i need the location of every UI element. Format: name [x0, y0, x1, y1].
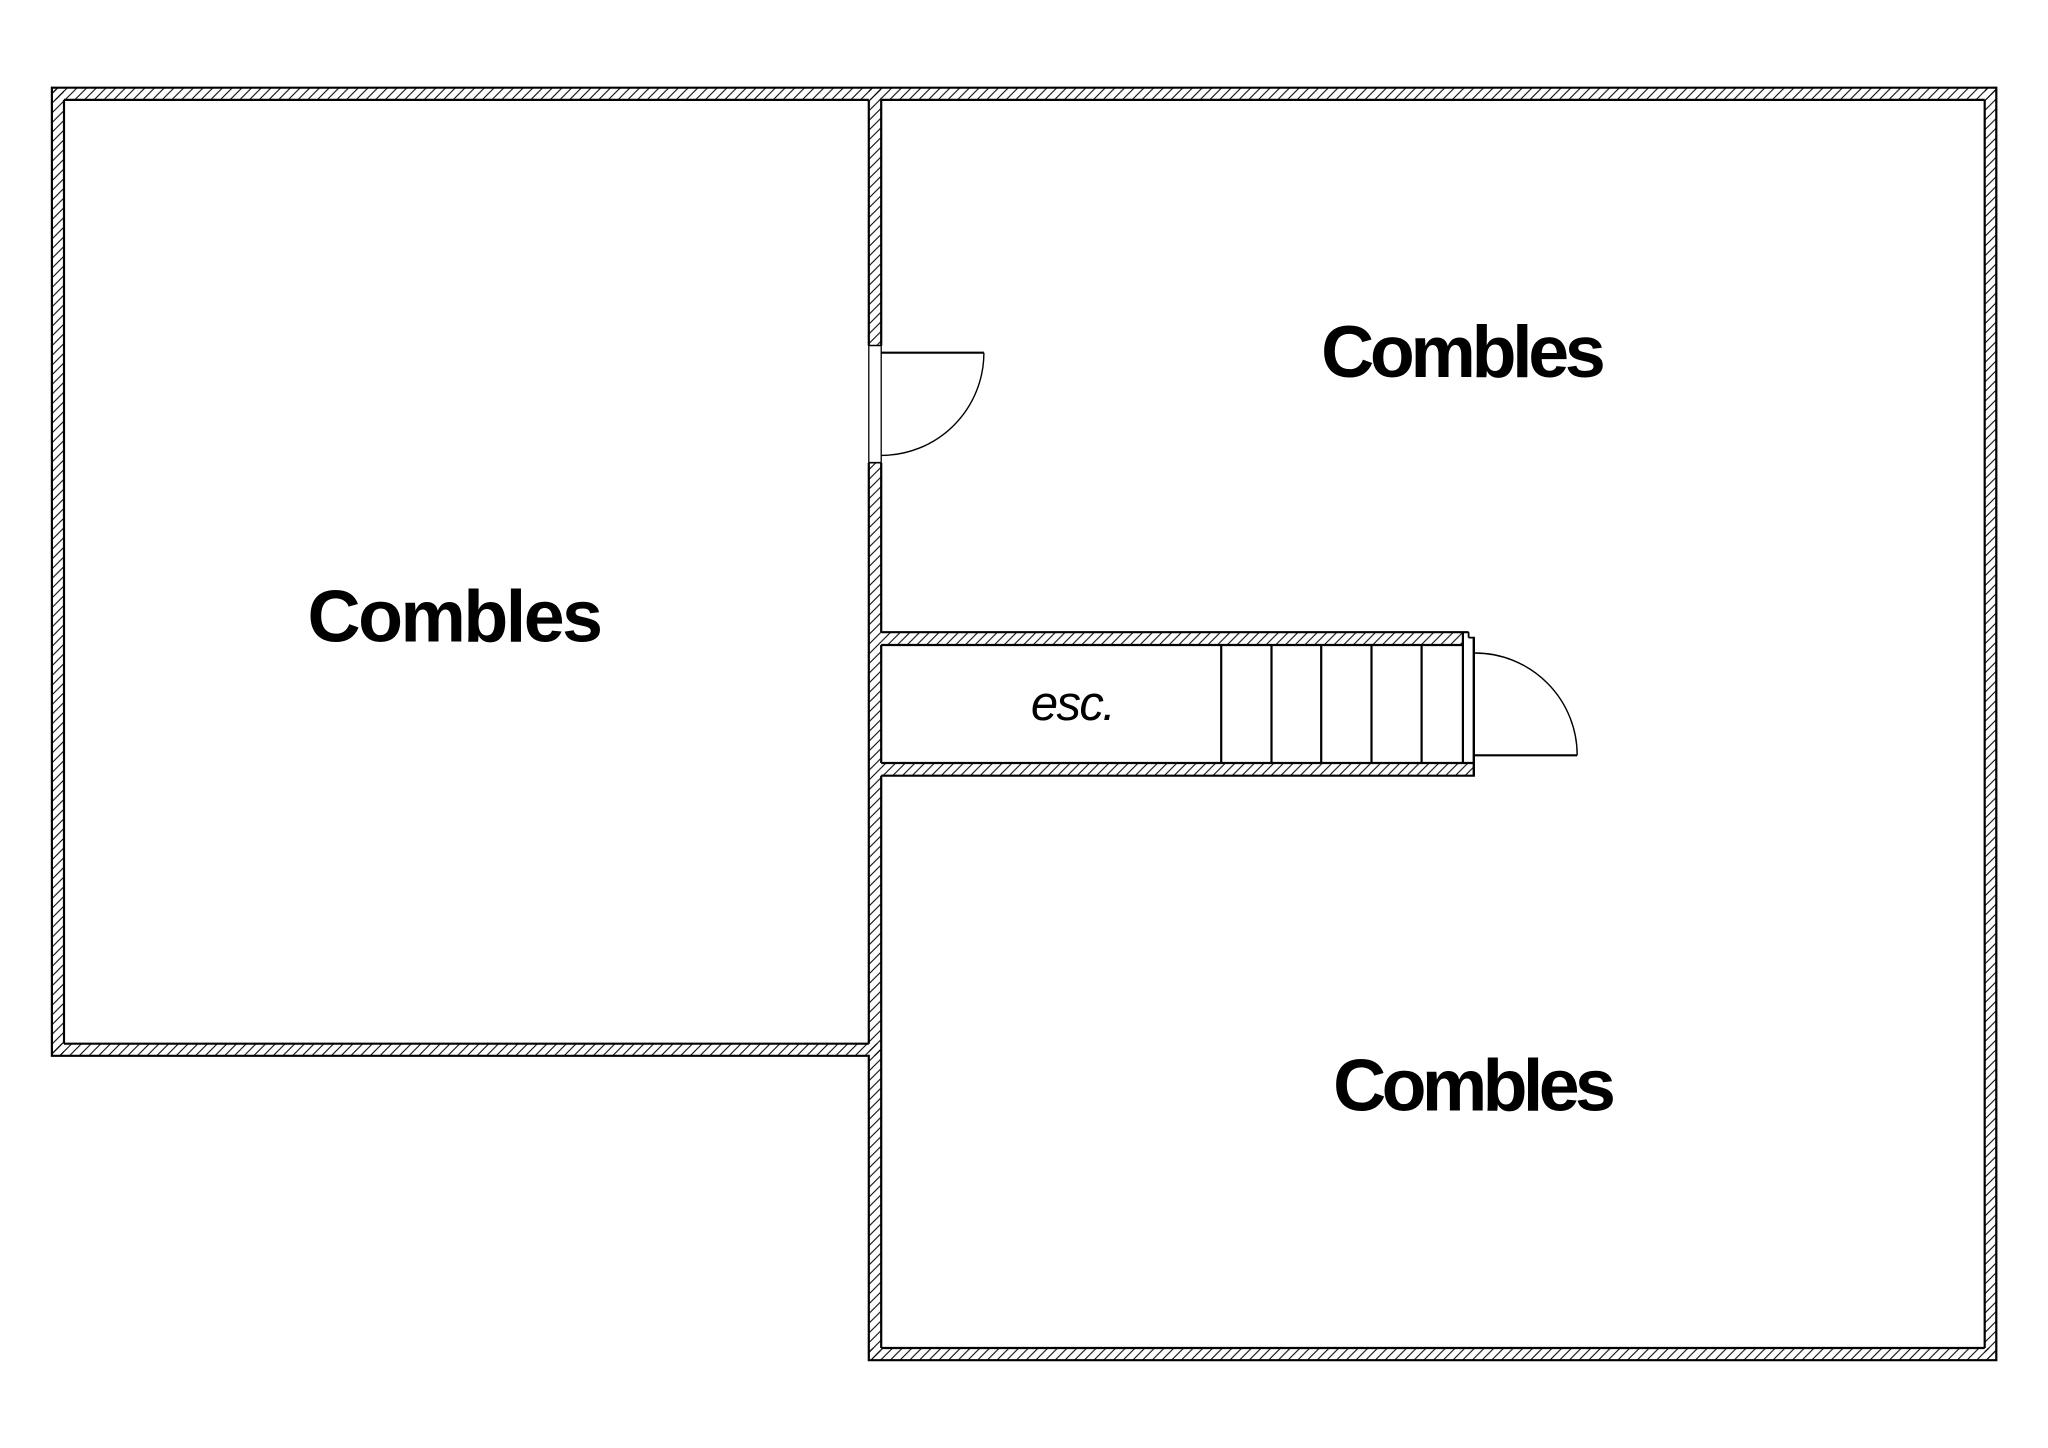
svg-text:Combles: Combles	[308, 575, 601, 658]
svg-text:esc.: esc.	[1031, 677, 1114, 731]
svg-text:Combles: Combles	[1333, 1044, 1613, 1127]
svg-text:Combles: Combles	[1321, 310, 1603, 393]
